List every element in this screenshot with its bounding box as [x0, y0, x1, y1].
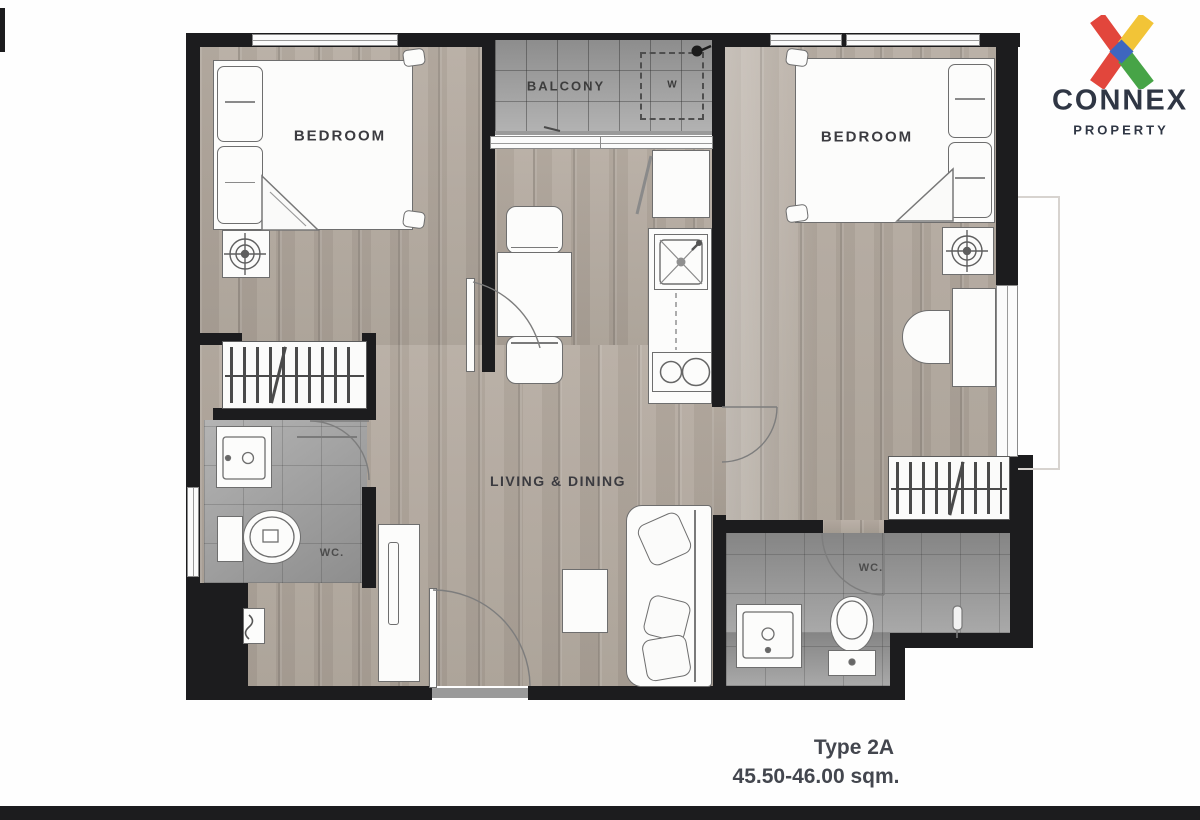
- bottom-bar: [0, 806, 1200, 820]
- sliding-door-leaf-right: [600, 136, 713, 149]
- pillow-icon: [948, 142, 992, 218]
- tv-icon: [388, 542, 399, 625]
- ledge-line: [1018, 196, 1060, 198]
- unit-type-label: Type 2A: [814, 736, 894, 760]
- stove-icon: [652, 352, 712, 392]
- wall-wc-right-top-a: [713, 520, 823, 533]
- bed-post-icon: [402, 48, 426, 68]
- wall-bottom-left: [240, 686, 432, 700]
- wall-below-wc-left: [200, 583, 248, 686]
- pillow-icon: [217, 66, 263, 142]
- toilet-tank-icon: [217, 516, 243, 562]
- bed-post-icon: [785, 204, 809, 224]
- washer-label: W: [667, 80, 676, 91]
- wall-wc-right-top-b: [884, 520, 1010, 533]
- desk-chair-icon: [902, 310, 950, 364]
- sink-icon: [654, 234, 708, 290]
- wall-bottom-right-step-h: [890, 633, 1033, 648]
- sliding-door-leaf-left: [490, 136, 602, 149]
- balcony-threshold: [495, 131, 712, 135]
- water-heater-icon: [243, 608, 265, 644]
- connex-logo-icon: [1076, 15, 1166, 89]
- wall-wc-left-top: [213, 408, 367, 420]
- window-bedroom-left: [252, 34, 398, 46]
- dining-table-icon: [497, 252, 572, 337]
- coffee-table-icon: [562, 569, 608, 633]
- pillow-icon: [217, 146, 263, 224]
- logo-green-arm: [1125, 57, 1147, 86]
- unit-area-label: 45.50-46.00 sqm.: [733, 765, 900, 789]
- toilet-bowl-icon: [243, 510, 301, 564]
- entrance-threshold: [432, 688, 528, 698]
- washbasin-icon: [736, 604, 802, 668]
- ledge-line: [1018, 468, 1060, 470]
- sofa-backrest-line: [694, 510, 696, 682]
- toilet-tank-icon: [828, 650, 876, 676]
- desk-icon: [952, 288, 996, 387]
- room-label-balcony: BALCONY: [527, 79, 605, 94]
- logo-yellow-arm: [1125, 18, 1147, 47]
- room-label-living-dining: LIVING & DINING: [490, 473, 626, 489]
- nightstand-left: [222, 230, 270, 278]
- brand-tagline: PROPERTY: [1073, 123, 1169, 138]
- hall-floor-patch: [712, 407, 726, 520]
- room-label-wc-right: WC.: [859, 562, 883, 574]
- bed-post-icon: [785, 48, 809, 68]
- wall-wc-right-left: [713, 515, 726, 700]
- cushion-icon: [641, 633, 693, 682]
- tv-console: [378, 524, 420, 682]
- dining-chair-icon: [506, 336, 563, 384]
- room-label-bedroom-left: BEDROOM: [294, 128, 386, 145]
- edge-artifact: [0, 8, 5, 52]
- bed-post-icon: [402, 210, 426, 230]
- wall-bedroom-left-divider: [482, 33, 495, 372]
- wall-bottom-wc-right: [630, 686, 905, 700]
- window-bedroom-right-side: [996, 285, 1018, 457]
- room-label-bedroom-right: BEDROOM: [821, 129, 913, 146]
- window-wc-left: [187, 487, 199, 577]
- wall-right-lower: [1010, 455, 1033, 648]
- nightstand-right: [942, 227, 994, 275]
- entrance-door-leaf: [429, 588, 437, 688]
- floor-plan-page: BEDROOM BEDROOM BALCONY W LIVING & DININ…: [0, 0, 1200, 820]
- wc-right-door-threshold-floor: [822, 520, 884, 533]
- wardrobe-left: [222, 341, 367, 409]
- fridge-icon: [652, 150, 710, 218]
- dining-chair-icon: [506, 206, 563, 254]
- washbasin-icon: [216, 426, 272, 488]
- wall-wc-left-right: [362, 487, 376, 588]
- brand-name: CONNEX: [1052, 85, 1188, 118]
- wall-kitchen: [712, 33, 725, 407]
- wardrobe-right: [888, 456, 1010, 520]
- wall-bottom-mid: [528, 686, 630, 700]
- room-label-wc-left: WC.: [320, 547, 344, 559]
- balcony-railing: [495, 33, 712, 40]
- ledge-line: [1058, 196, 1060, 470]
- bedroom-left-door-leaf: [466, 278, 475, 372]
- toilet-bowl-icon: [830, 596, 874, 652]
- window-bedroom-right-a: [770, 34, 842, 46]
- wardrobe-rail: [891, 488, 1007, 490]
- window-bedroom-right-b: [846, 34, 980, 46]
- wardrobe-rail: [225, 375, 364, 377]
- pillow-icon: [948, 64, 992, 138]
